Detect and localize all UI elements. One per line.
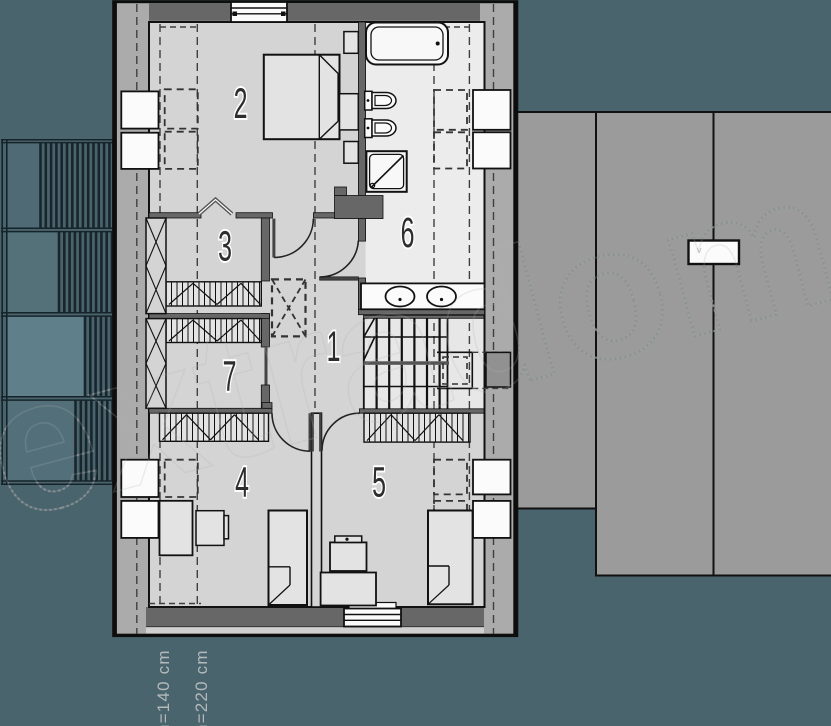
svg-text:3: 3: [218, 222, 232, 270]
svg-text:h=140 cm: h=140 cm: [154, 649, 173, 726]
svg-text:5: 5: [372, 458, 386, 506]
svg-text:h=220 cm: h=220 cm: [192, 649, 211, 726]
svg-text:2: 2: [234, 80, 248, 128]
